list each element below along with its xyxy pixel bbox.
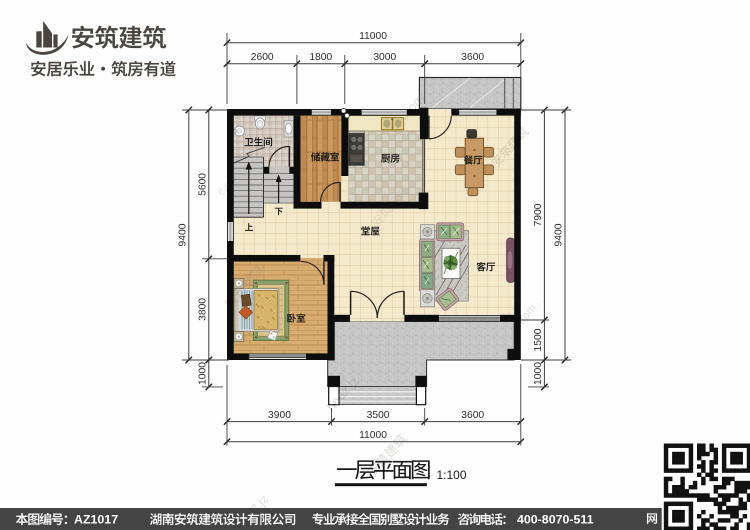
svg-text:11000: 11000 <box>359 31 387 42</box>
svg-text:5600: 5600 <box>198 173 209 196</box>
svg-text:3600: 3600 <box>461 52 484 63</box>
svg-text:7900: 7900 <box>533 203 544 226</box>
svg-text:1500: 1500 <box>533 328 544 351</box>
svg-text:3800: 3800 <box>198 298 209 321</box>
svg-text:1000: 1000 <box>198 362 209 385</box>
svg-text:9400: 9400 <box>178 223 189 246</box>
svg-text:1:100: 1:100 <box>437 468 467 482</box>
svg-text:11000: 11000 <box>359 430 387 441</box>
svg-text:1000: 1000 <box>533 362 544 385</box>
svg-text:AZ1017: AZ1017 <box>74 513 118 527</box>
svg-text:3600: 3600 <box>461 410 484 421</box>
svg-text:400-8070-511: 400-8070-511 <box>517 513 594 527</box>
svg-text:1800: 1800 <box>309 52 332 63</box>
svg-text:3900: 3900 <box>268 410 291 421</box>
svg-text:3500: 3500 <box>367 410 390 421</box>
svg-text:9400: 9400 <box>554 223 565 246</box>
svg-text:3000: 3000 <box>373 52 396 63</box>
svg-text:2600: 2600 <box>251 52 274 63</box>
